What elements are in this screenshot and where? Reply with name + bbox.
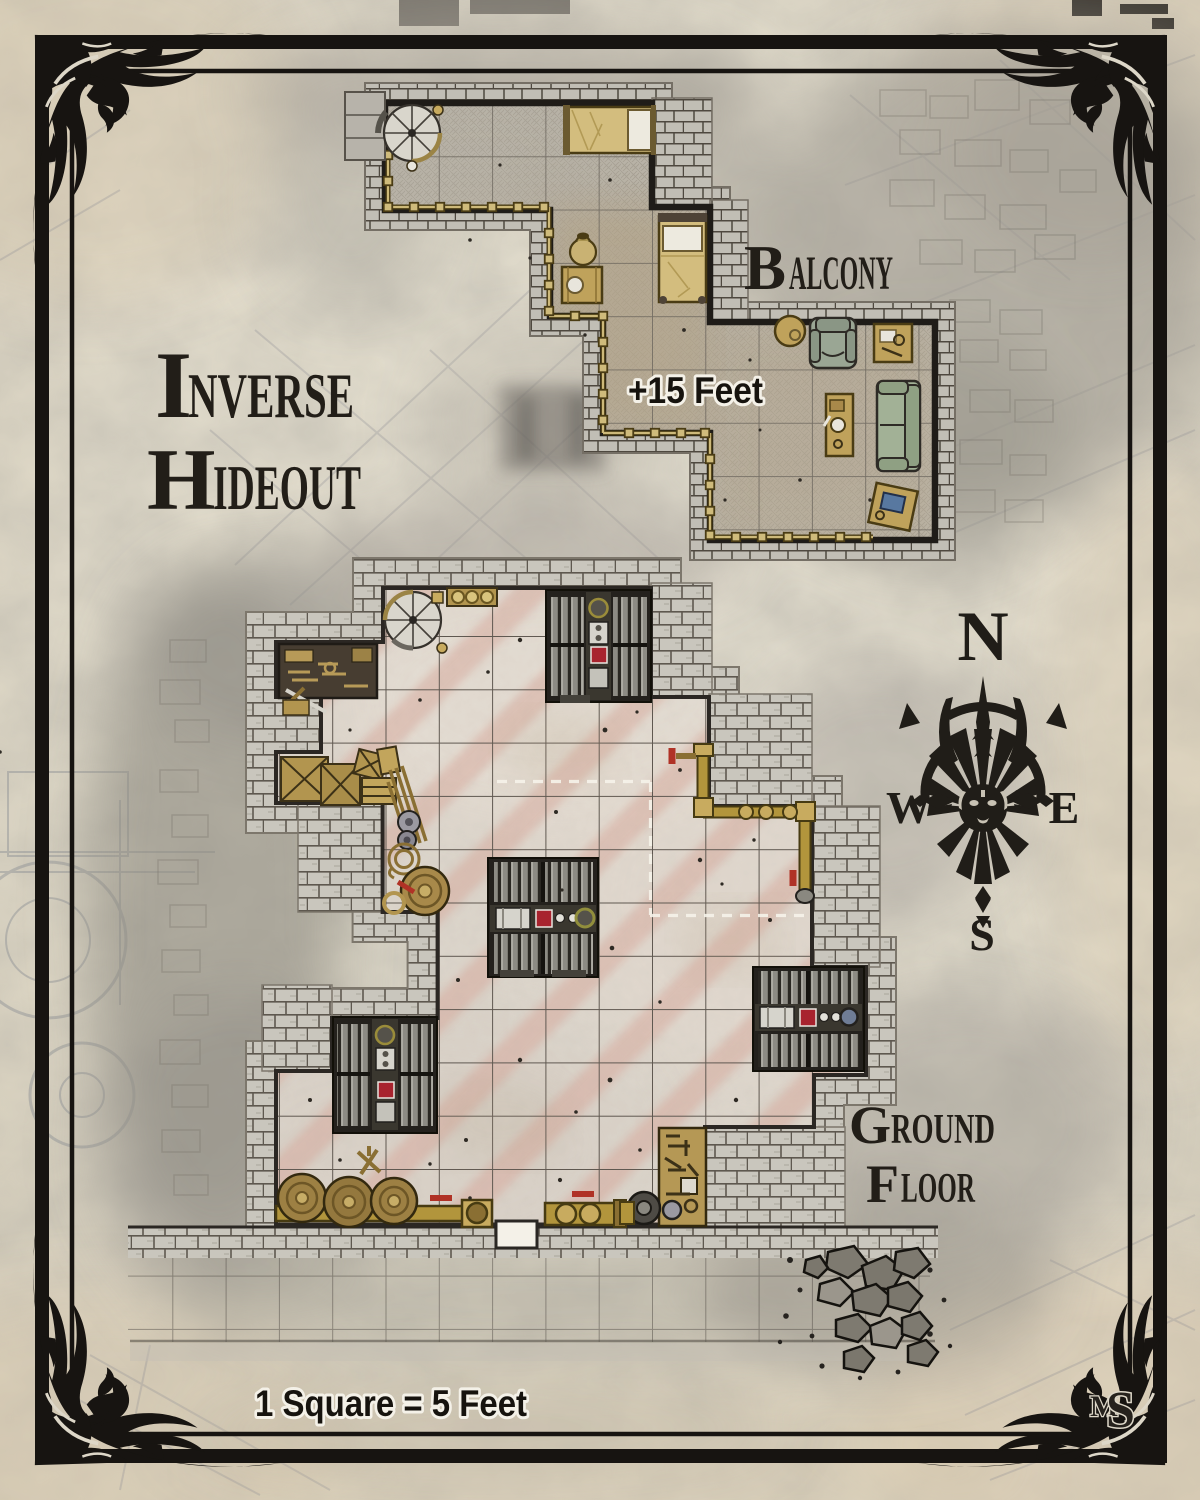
svg-text:ALCONY: ALCONY xyxy=(789,247,893,300)
svg-text:E: E xyxy=(1049,782,1080,833)
svg-text:IDEOUT: IDEOUT xyxy=(213,452,361,523)
svg-text:B: B xyxy=(744,233,786,303)
svg-text:F: F xyxy=(866,1154,899,1214)
svg-text:LOOR: LOOR xyxy=(901,1166,975,1212)
svg-text:I: I xyxy=(155,332,192,438)
svg-text:ROUND: ROUND xyxy=(891,1107,995,1153)
svg-text:G: G xyxy=(849,1095,891,1155)
svg-text:1 Square = 5 Feet: 1 Square = 5 Feet xyxy=(255,1383,527,1424)
svg-text:+15 Feet: +15 Feet xyxy=(628,370,763,411)
svg-text:N: N xyxy=(957,598,1008,676)
svg-text:H: H xyxy=(147,432,215,529)
svg-text:S: S xyxy=(1106,1382,1135,1439)
svg-text:NVERSE: NVERSE xyxy=(188,360,354,431)
